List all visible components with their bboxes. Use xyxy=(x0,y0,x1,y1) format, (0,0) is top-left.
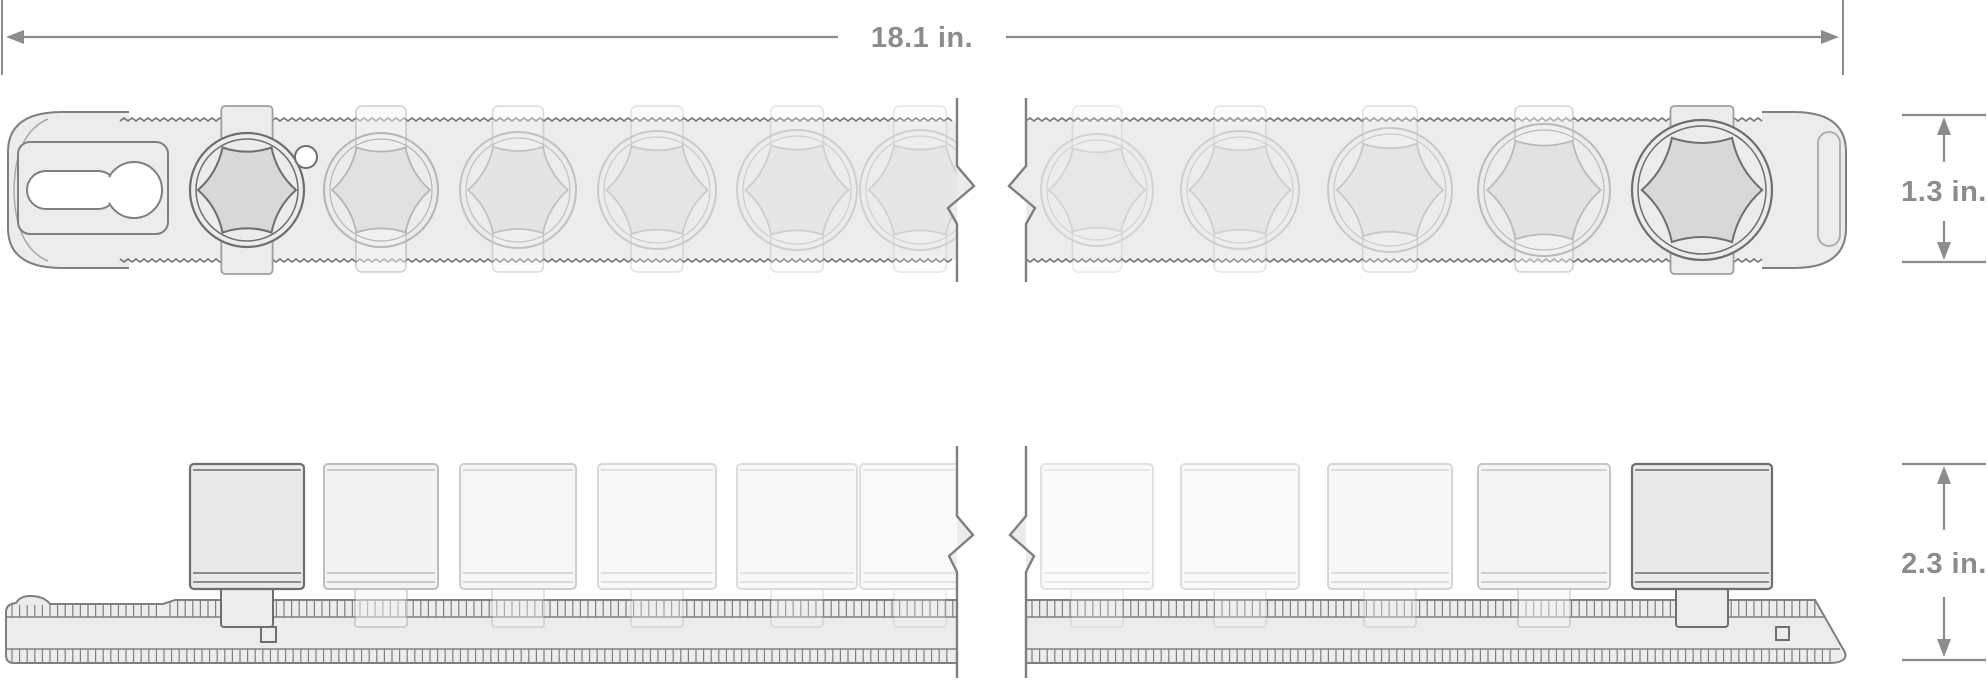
arrow-up-icon xyxy=(1937,466,1951,484)
arrow-down-icon xyxy=(1937,639,1951,657)
socket-rail-clip xyxy=(355,588,407,627)
arrow-right-icon xyxy=(1821,30,1839,44)
socket-rail-clip xyxy=(221,588,273,627)
socket-rail-clip xyxy=(771,588,823,627)
socket-rail-clip xyxy=(1071,588,1123,627)
side-rail-square-hole-right xyxy=(1776,627,1789,640)
top-view-break-lines xyxy=(948,98,1035,282)
side-rail-square-hole-left xyxy=(261,627,276,642)
arrow-up-icon xyxy=(1937,117,1951,135)
socket-rail-diagram: 18.1 in. 1.3 in. 2.3 in. xyxy=(0,0,1988,681)
detent-pin-hole xyxy=(295,146,317,168)
socket-rail-clip xyxy=(492,588,544,627)
overall-width-label: 18.1 in. xyxy=(871,22,973,54)
socket-rail-clip xyxy=(631,588,683,627)
socket-rail-clip xyxy=(894,588,946,627)
arrow-left-icon xyxy=(6,30,24,44)
dimension-overall-width: 18.1 in. xyxy=(2,0,1843,75)
side-view-break-lines xyxy=(949,446,1034,678)
dimension-rail-height: 1.3 in. xyxy=(1901,115,1987,262)
keyhole-slot xyxy=(27,162,162,218)
dimension-side-height: 2.3 in. xyxy=(1901,464,1987,660)
side-view xyxy=(6,446,1846,678)
socket-rail-clip xyxy=(1214,588,1266,627)
top-view xyxy=(8,98,1846,282)
side-height-label: 2.3 in. xyxy=(1901,548,1987,580)
socket-rail-clip xyxy=(1364,588,1416,627)
socket-rail-clip xyxy=(1676,588,1728,627)
socket-rail-clip xyxy=(1518,588,1570,627)
rail-height-label: 1.3 in. xyxy=(1901,176,1987,208)
arrow-down-icon xyxy=(1937,242,1951,260)
diagram-canvas: 18.1 in. 1.3 in. 2.3 in. xyxy=(0,0,1988,681)
